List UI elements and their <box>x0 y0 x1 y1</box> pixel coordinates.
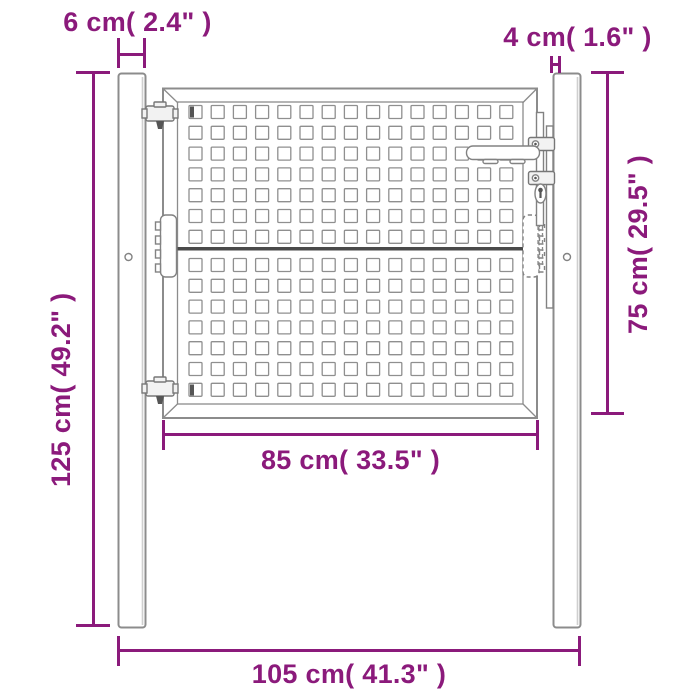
keyhole-icon <box>535 184 546 203</box>
perforation-shading <box>190 385 194 396</box>
post-left <box>119 74 146 628</box>
dim-line-total-width <box>117 649 581 652</box>
dim-label-left-post-width: 6 cm( 2.4" ) <box>40 8 235 38</box>
diagram-canvas: 6 cm( 2.4" ) 4 cm( 1.6" ) 125 cm( 49.2" … <box>0 0 700 700</box>
dim-tick <box>591 412 624 415</box>
strike-plate <box>547 126 554 308</box>
gate-middle-rail <box>178 247 524 251</box>
latch-bracket-bottom <box>529 172 555 185</box>
perforation-shading <box>190 107 194 118</box>
dim-line-post-height <box>92 73 95 627</box>
gate-technical-drawing <box>0 0 700 700</box>
dim-label-gate-height: 75 cm( 29.5" ) <box>618 104 660 384</box>
dim-label-total-width: 105 cm( 41.3" ) <box>117 660 581 690</box>
dim-label-gate-width: 85 cm( 33.5" ) <box>163 446 538 476</box>
dim-tick <box>76 624 110 627</box>
dim-line-left-post-width <box>117 53 146 56</box>
dim-line-gate-height <box>606 73 609 415</box>
lock-bar <box>537 113 544 226</box>
dim-line-gate-width <box>162 433 539 436</box>
hinge-plate-left <box>156 215 177 277</box>
post-right <box>554 74 581 628</box>
dim-line-right-post-width <box>550 63 561 66</box>
dim-label-right-post-width: 4 cm( 1.6" ) <box>470 23 685 53</box>
dim-label-post-height: 125 cm( 49.2" ) <box>44 230 80 550</box>
